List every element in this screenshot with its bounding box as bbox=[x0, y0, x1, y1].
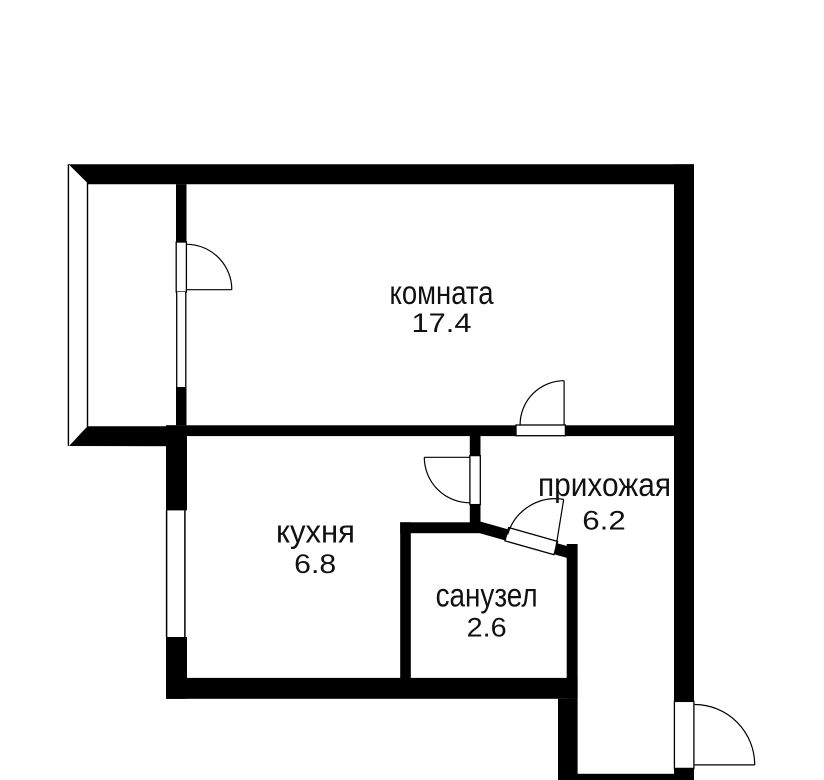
svg-text:санузел: санузел bbox=[436, 577, 538, 614]
svg-text:прихожая: прихожая bbox=[538, 466, 671, 503]
svg-text:17.4: 17.4 bbox=[412, 308, 472, 338]
svg-text:6.2: 6.2 bbox=[582, 506, 626, 536]
svg-text:2.6: 2.6 bbox=[467, 613, 507, 643]
svg-text:комната: комната bbox=[390, 274, 495, 311]
svg-text:кухня: кухня bbox=[276, 514, 355, 550]
svg-text:6.8: 6.8 bbox=[294, 549, 336, 579]
